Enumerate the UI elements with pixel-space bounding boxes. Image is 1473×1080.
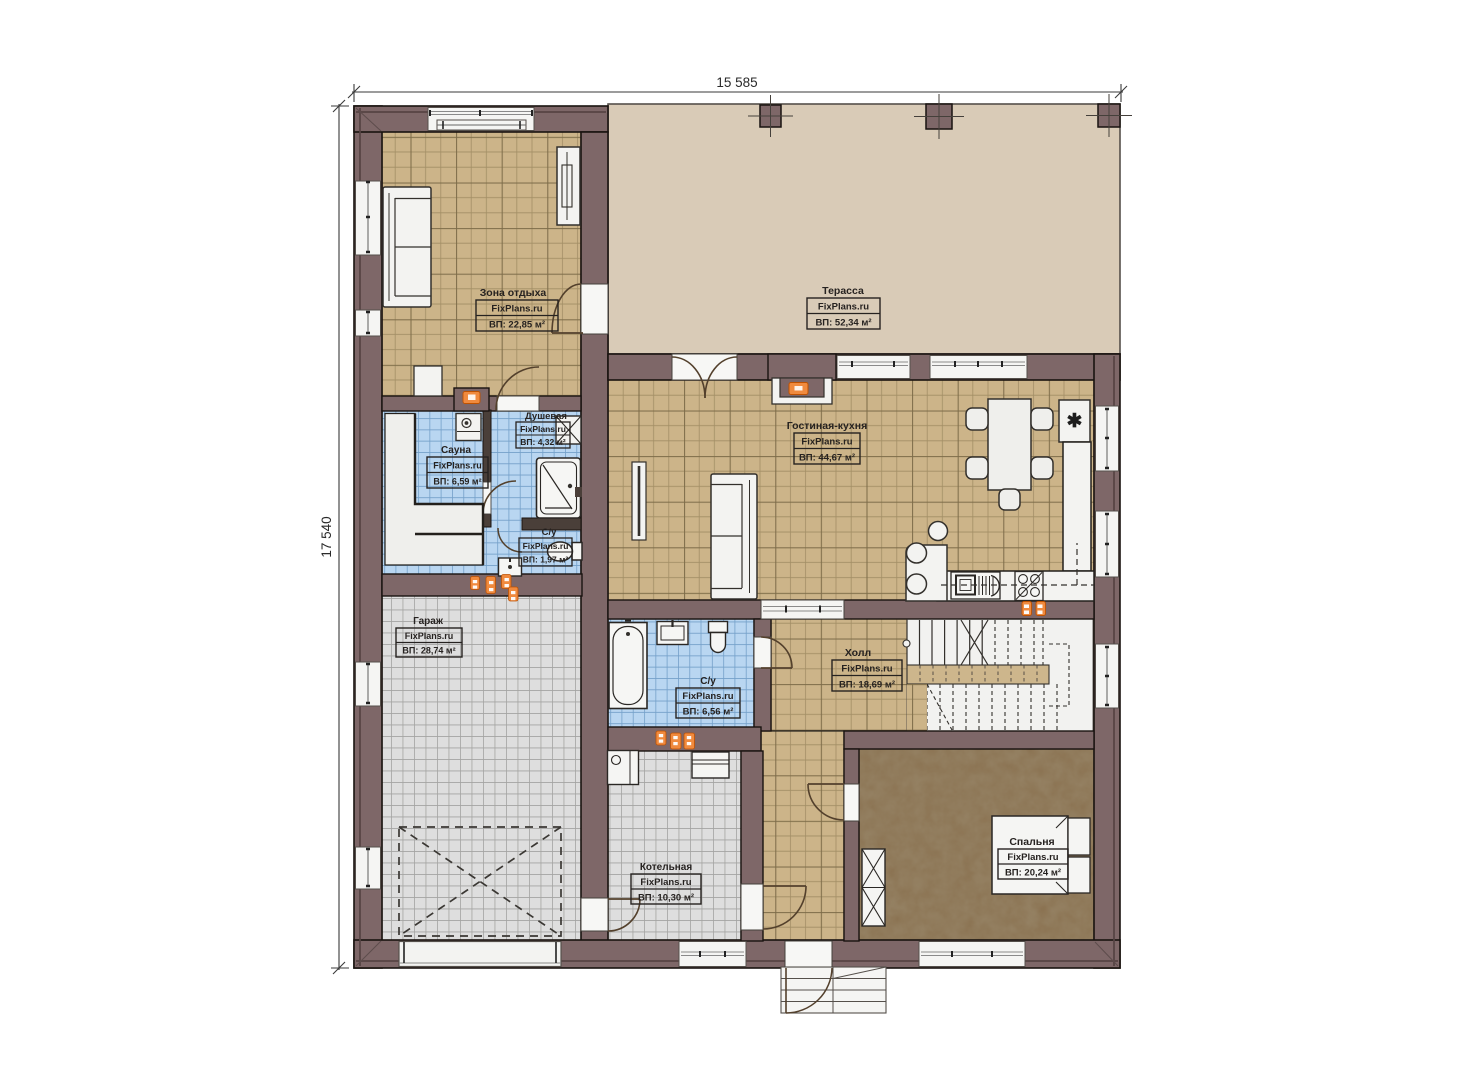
svg-text:FixPlans.ru: FixPlans.ru: [640, 877, 691, 888]
svg-text:Холл: Холл: [845, 647, 871, 659]
svg-text:Сауна: Сауна: [441, 445, 472, 456]
svg-text:Котельная: Котельная: [640, 862, 693, 873]
svg-text:С/у: С/у: [700, 676, 716, 687]
svg-text:Зона отдыха: Зона отдыха: [480, 287, 547, 299]
svg-text:Душевая: Душевая: [525, 411, 567, 422]
svg-text:✱: ✱: [1067, 411, 1083, 432]
svg-text:Гостиная-кухня: Гостиная-кухня: [787, 420, 867, 432]
svg-text:FixPlans.ru: FixPlans.ru: [682, 691, 733, 702]
svg-text:Спальня: Спальня: [1009, 836, 1054, 848]
svg-text:ВП: 52,34 м²: ВП: 52,34 м²: [815, 318, 871, 329]
svg-text:FixPlans.ru: FixPlans.ru: [520, 424, 566, 434]
svg-text:FixPlans.ru: FixPlans.ru: [491, 304, 542, 315]
svg-text:ВП: 18,69 м²: ВП: 18,69 м²: [839, 680, 895, 691]
svg-text:ВП: 20,24 м²: ВП: 20,24 м²: [1005, 868, 1061, 879]
svg-text:17 540: 17 540: [319, 516, 334, 557]
svg-text:ВП: 1,97 м²: ВП: 1,97 м²: [523, 555, 569, 565]
svg-text:FixPlans.ru: FixPlans.ru: [818, 302, 869, 313]
svg-text:ВП: 4,32 м²: ВП: 4,32 м²: [520, 437, 566, 447]
svg-text:15 585: 15 585: [716, 75, 757, 90]
svg-text:ВП: 22,85 м²: ВП: 22,85 м²: [489, 320, 545, 331]
svg-text:FixPlans.ru: FixPlans.ru: [801, 437, 852, 448]
svg-text:ВП: 44,67 м²: ВП: 44,67 м²: [799, 453, 855, 464]
svg-text:Терасса: Терасса: [822, 285, 864, 297]
svg-text:FixPlans.ru: FixPlans.ru: [433, 461, 482, 471]
svg-text:ВП: 6,59 м²: ВП: 6,59 м²: [433, 477, 481, 487]
svg-text:С/у: С/у: [542, 527, 558, 538]
svg-text:FixPlans.ru: FixPlans.ru: [523, 541, 569, 551]
svg-text:FixPlans.ru: FixPlans.ru: [1007, 852, 1058, 863]
svg-text:Гараж: Гараж: [413, 616, 444, 627]
svg-text:FixPlans.ru: FixPlans.ru: [405, 631, 454, 641]
svg-text:ВП: 6,56 м²: ВП: 6,56 м²: [683, 707, 734, 718]
svg-text:FixPlans.ru: FixPlans.ru: [841, 664, 892, 675]
svg-text:ВП: 10,30 м²: ВП: 10,30 м²: [638, 893, 694, 904]
svg-text:ВП: 28,74 м²: ВП: 28,74 м²: [402, 646, 455, 656]
